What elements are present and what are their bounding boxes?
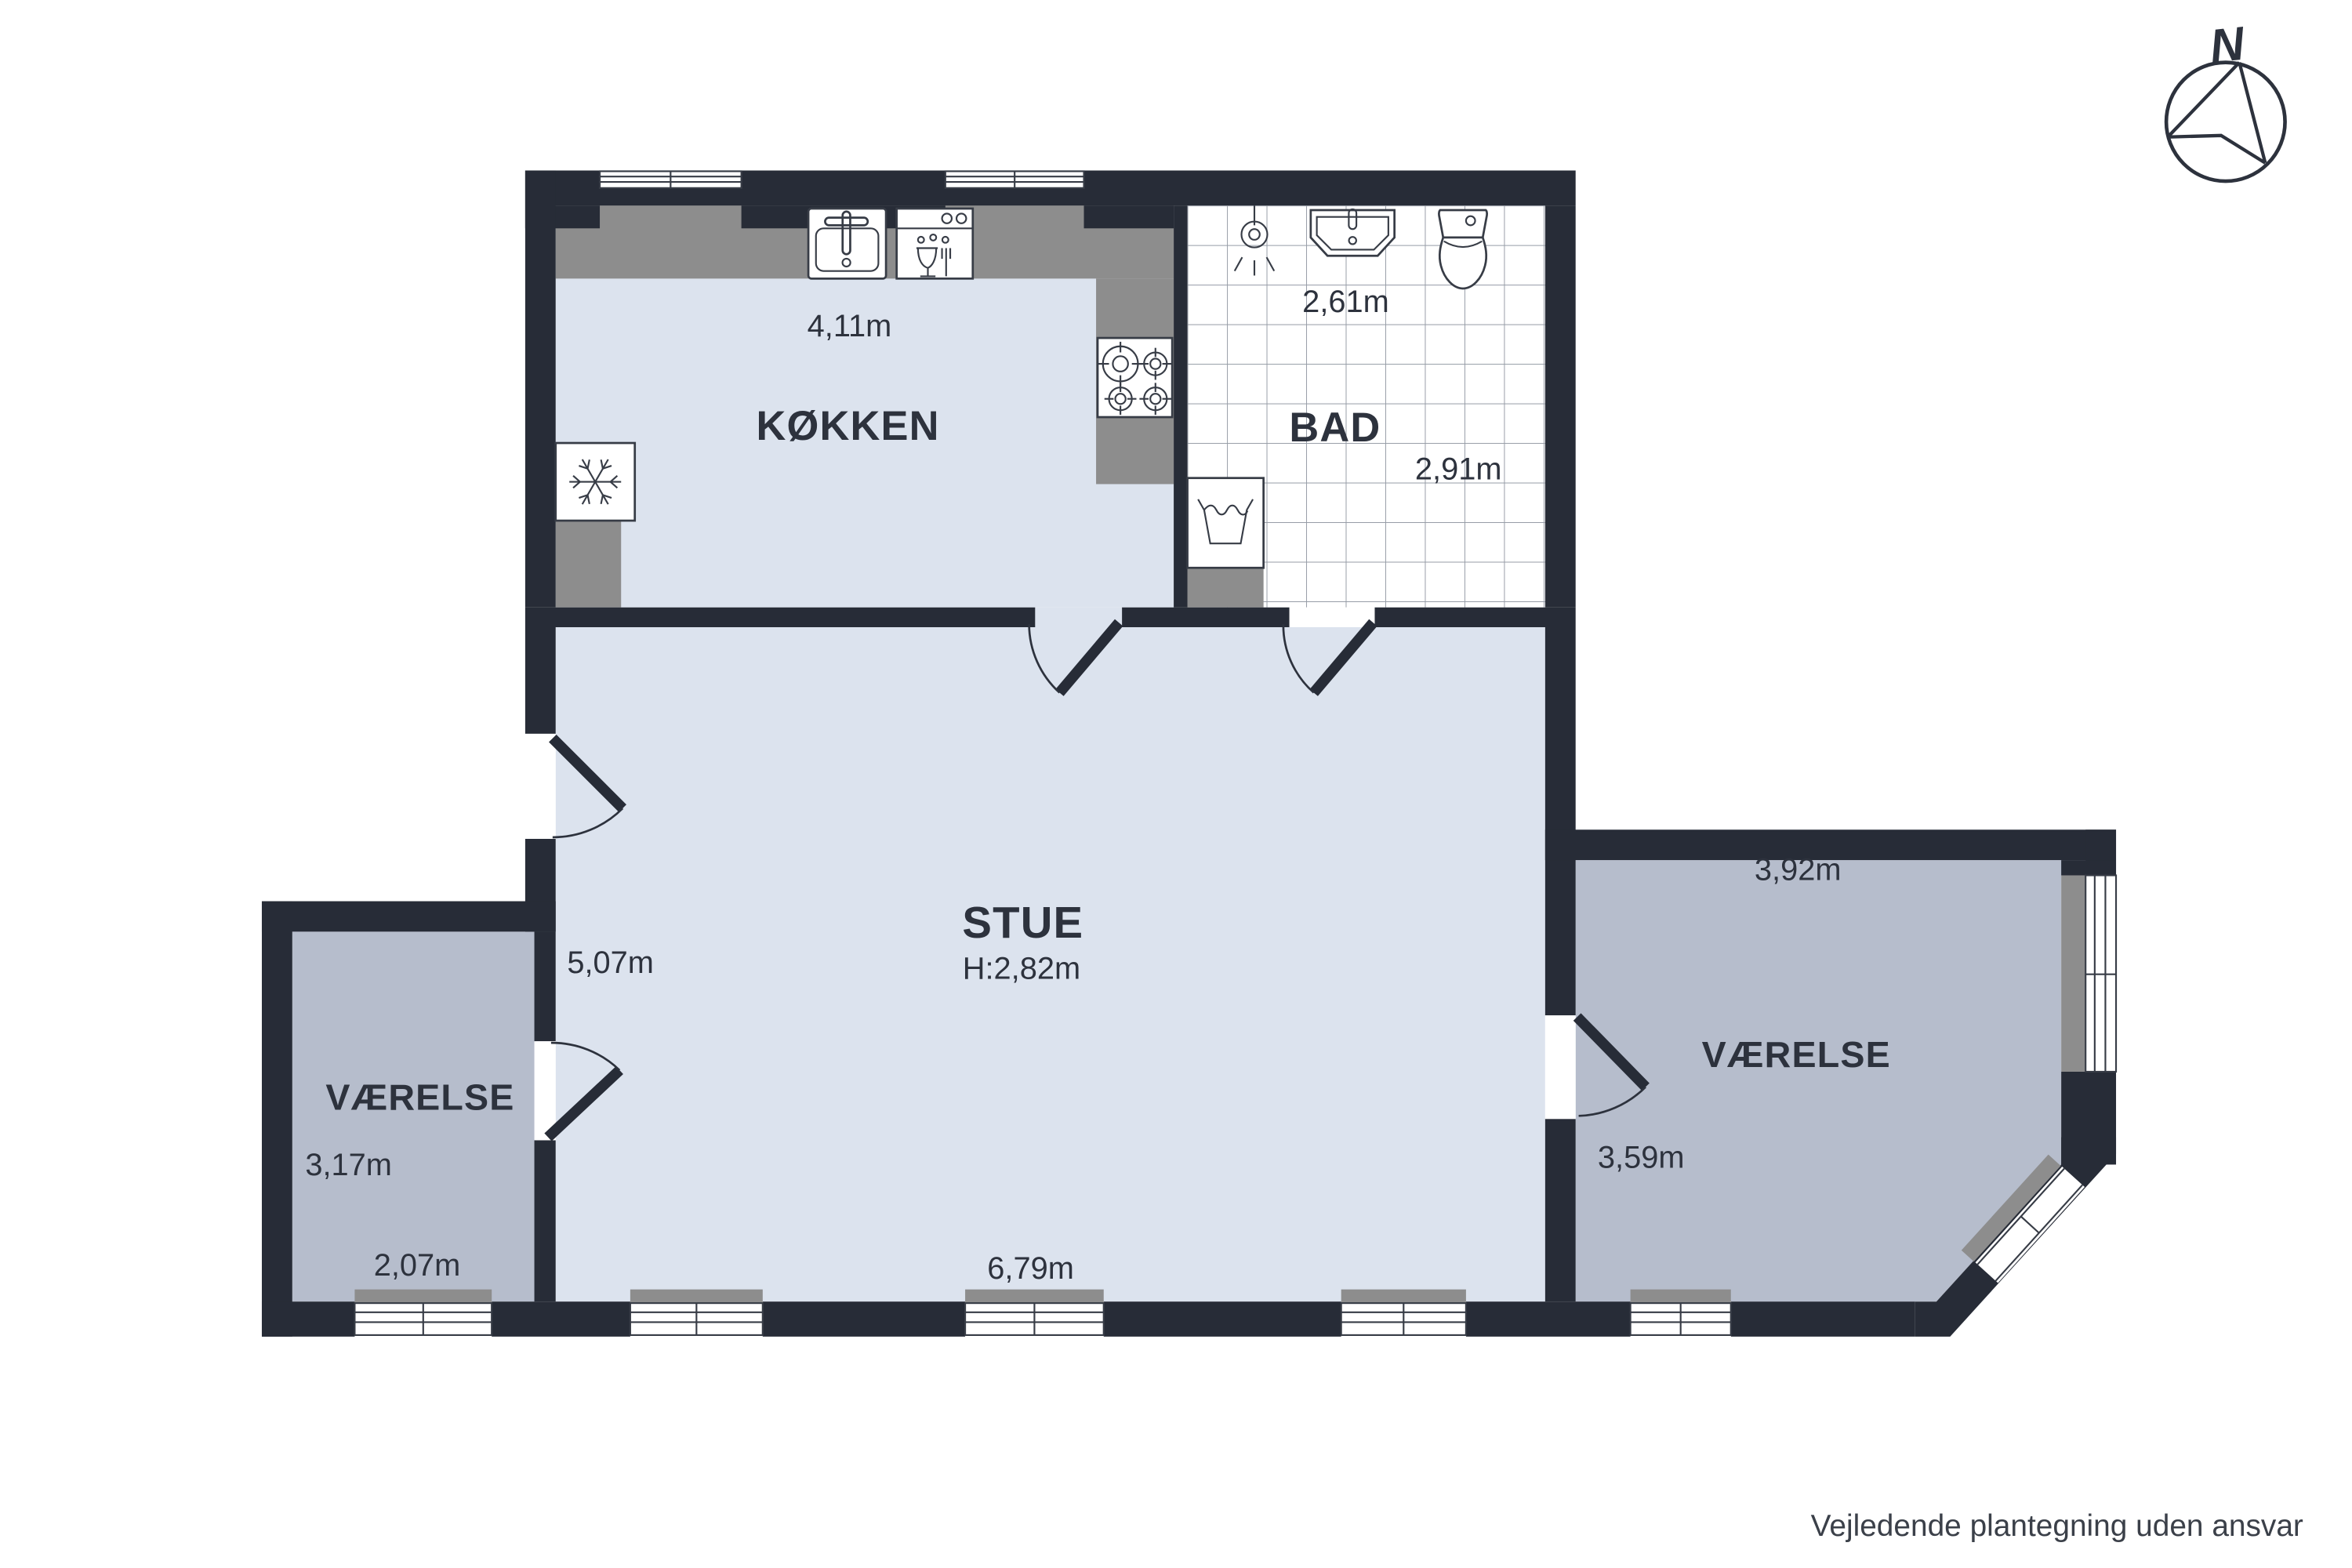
sink-icon — [808, 209, 886, 278]
window-living-2 — [965, 1290, 1104, 1335]
dim-kokken-top: 4,11m — [808, 309, 892, 343]
room-label-kokken: KØKKEN — [757, 404, 940, 449]
window-living-1 — [630, 1290, 763, 1335]
dim-vaerelse-left-bottom: 2,07m — [374, 1248, 461, 1283]
room-label-bad: BAD — [1289, 405, 1381, 451]
dim-stue-height: H:2,82m — [963, 952, 1080, 986]
north-arrow-icon — [2168, 63, 2265, 163]
dim-bad-top: 2,61m — [1302, 285, 1389, 319]
dim-bad-right: 2,91m — [1415, 452, 1502, 487]
dim-stue-bottom: 6,79m — [987, 1251, 1074, 1286]
window-right-room-side — [2061, 876, 2116, 1072]
window-kitchen-2 — [946, 171, 1084, 187]
washing-machine-icon — [1188, 478, 1264, 568]
window-living-3 — [1341, 1290, 1466, 1335]
fridge-icon — [556, 443, 635, 521]
disclaimer-text: Vejledende plantegning uden ansvar — [1811, 1509, 2303, 1543]
dim-stue-left: 5,07m — [567, 946, 654, 980]
window-right-room-bottom — [1631, 1290, 1731, 1335]
washbasin-icon — [1311, 209, 1395, 256]
room-label-stue: STUE — [962, 898, 1083, 947]
compass-north-label: N — [2207, 17, 2248, 73]
floor-plan-drawing: KØKKEN 4,11m BAD 2,61m 2,91m STUE H:2,82… — [0, 0, 2352, 1568]
window-kitchen-1 — [600, 171, 742, 187]
dim-vaerelse-right-top: 3,92m — [1755, 852, 1842, 887]
window-left-room — [354, 1290, 492, 1335]
room-label-vaerelse-right: VÆRELSE — [1702, 1034, 1891, 1075]
toilet-icon — [1439, 210, 1486, 289]
dim-vaerelse-left-side: 3,17m — [305, 1148, 392, 1182]
compass: N — [2166, 17, 2285, 182]
room-label-vaerelse-left: VÆRELSE — [325, 1077, 514, 1118]
stove-icon — [1098, 338, 1172, 417]
dim-vaerelse-right-left: 3,59m — [1598, 1140, 1685, 1174]
dishwasher-icon — [897, 209, 973, 278]
floor-plan-page: KØKKEN 4,11m BAD 2,61m 2,91m STUE H:2,82… — [0, 0, 2352, 1568]
